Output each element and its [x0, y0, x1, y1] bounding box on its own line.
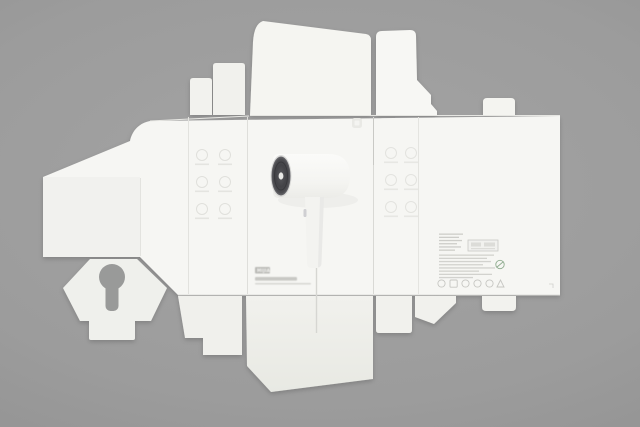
top-dust-flap: [376, 30, 437, 115]
brand-logo-mark: [352, 118, 362, 128]
bottom-flap-large: [246, 296, 373, 392]
top-lid-flap: [250, 21, 371, 115]
hang-tab-flap: [63, 259, 167, 340]
top-flap-step-small: [190, 78, 212, 115]
bottom-flap-small: [376, 296, 412, 333]
top-flap-step-large: [213, 63, 245, 115]
bottom-flap-stepped: [178, 296, 242, 355]
bottom-tuck-tab: [482, 296, 516, 311]
product-subline-bar: [255, 283, 311, 285]
packaging-dieline-photo: MIJIA: [0, 0, 640, 427]
keyhole-cutout-slot: [106, 280, 119, 311]
product-name-bar: [255, 277, 297, 281]
top-tuck-tab: [483, 98, 515, 115]
hair-dryer-switch: [304, 209, 307, 217]
brand-wordmark-text: MIJIA: [257, 268, 271, 273]
photo-backdrop: MIJIA: [0, 0, 640, 427]
barcode-box: [468, 240, 498, 251]
left-flap-shading: [43, 177, 140, 257]
hair-dryer-intake-grille: [271, 155, 292, 197]
bottom-flap-angled: [415, 296, 456, 324]
intake-center-dot: [279, 172, 284, 179]
